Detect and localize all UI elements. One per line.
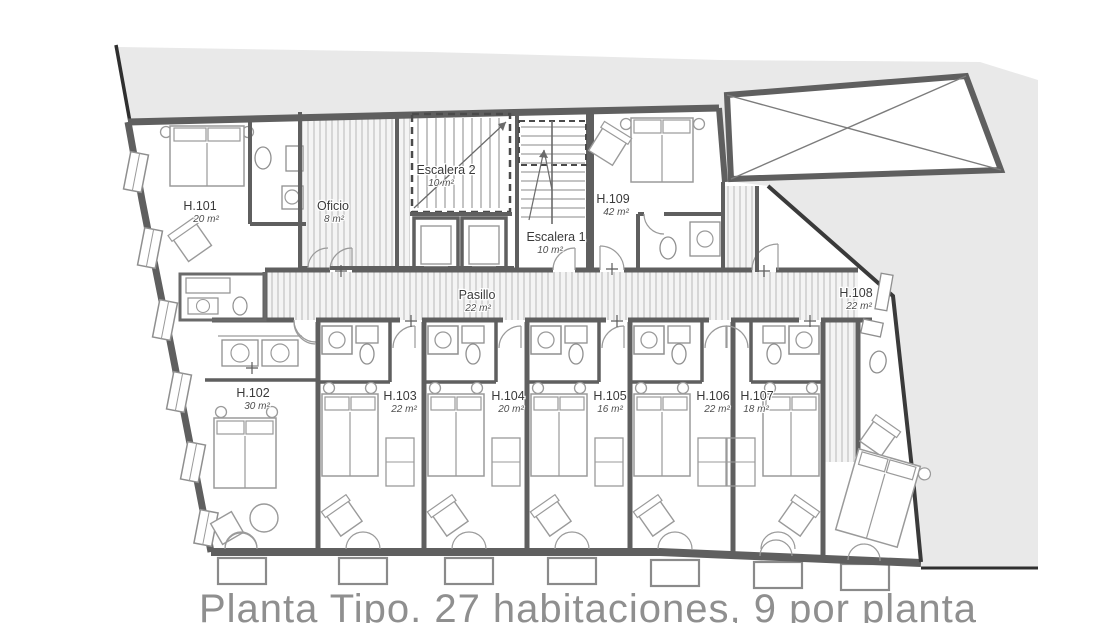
h109-bed xyxy=(621,118,705,182)
room-h104-label: H.104 xyxy=(491,389,524,403)
elevators xyxy=(410,214,514,268)
room-h103-label: H.103 xyxy=(383,389,416,403)
room-h101-label: H.101 xyxy=(183,199,216,213)
h101-bed xyxy=(161,126,254,186)
room-h105-label: H.105 xyxy=(593,389,626,403)
corridor-floor xyxy=(265,272,858,320)
balconies xyxy=(218,558,889,590)
oficio-floor xyxy=(302,114,394,268)
room-h107-label: H.107 xyxy=(740,389,773,403)
room-h105-area: 16 m² xyxy=(597,404,623,415)
space-escalera1-area: 10 m² xyxy=(537,245,563,256)
room-h102-area: 30 m² xyxy=(244,401,270,412)
space-oficio-area: 8 m² xyxy=(324,214,345,225)
plan-caption: Planta Tipo. 27 habitaciones, 9 por plan… xyxy=(199,587,977,623)
space-oficio-label: Oficio xyxy=(317,199,349,213)
h102-bed xyxy=(214,407,278,489)
room-h109-area: 42 m² xyxy=(603,207,629,218)
room-h106-label: H.106 xyxy=(696,389,729,403)
space-escalera2-area: 10 m² xyxy=(428,178,454,189)
room-h108-label: H.108 xyxy=(839,286,872,300)
h102-round-table xyxy=(250,504,278,532)
room-h108-area: 22 m² xyxy=(845,301,872,312)
space-pasillo-label: Pasillo xyxy=(459,288,496,302)
space-escalera2-label: Escalera 2 xyxy=(416,163,475,177)
room-h106-area: 22 m² xyxy=(703,404,730,415)
room-h109-label: H.109 xyxy=(596,192,629,206)
room-h102-label: H.102 xyxy=(236,386,269,400)
room-h101-area: 20 m² xyxy=(192,214,219,225)
floor-plan-svg: H.101 20 m² Oficio 8 m² Escalera 2 10 m²… xyxy=(0,0,1110,623)
patio-lightwell xyxy=(727,76,1001,179)
space-pasillo-area: 22 m² xyxy=(464,303,491,314)
room-h104-area: 20 m² xyxy=(497,404,524,415)
floor-plan-page: H.101 20 m² Oficio 8 m² Escalera 2 10 m²… xyxy=(0,0,1110,623)
room-h107-area: 18 m² xyxy=(743,404,769,415)
space-escalera1-label: Escalera 1 xyxy=(526,230,585,244)
room-h103-area: 22 m² xyxy=(390,404,417,415)
